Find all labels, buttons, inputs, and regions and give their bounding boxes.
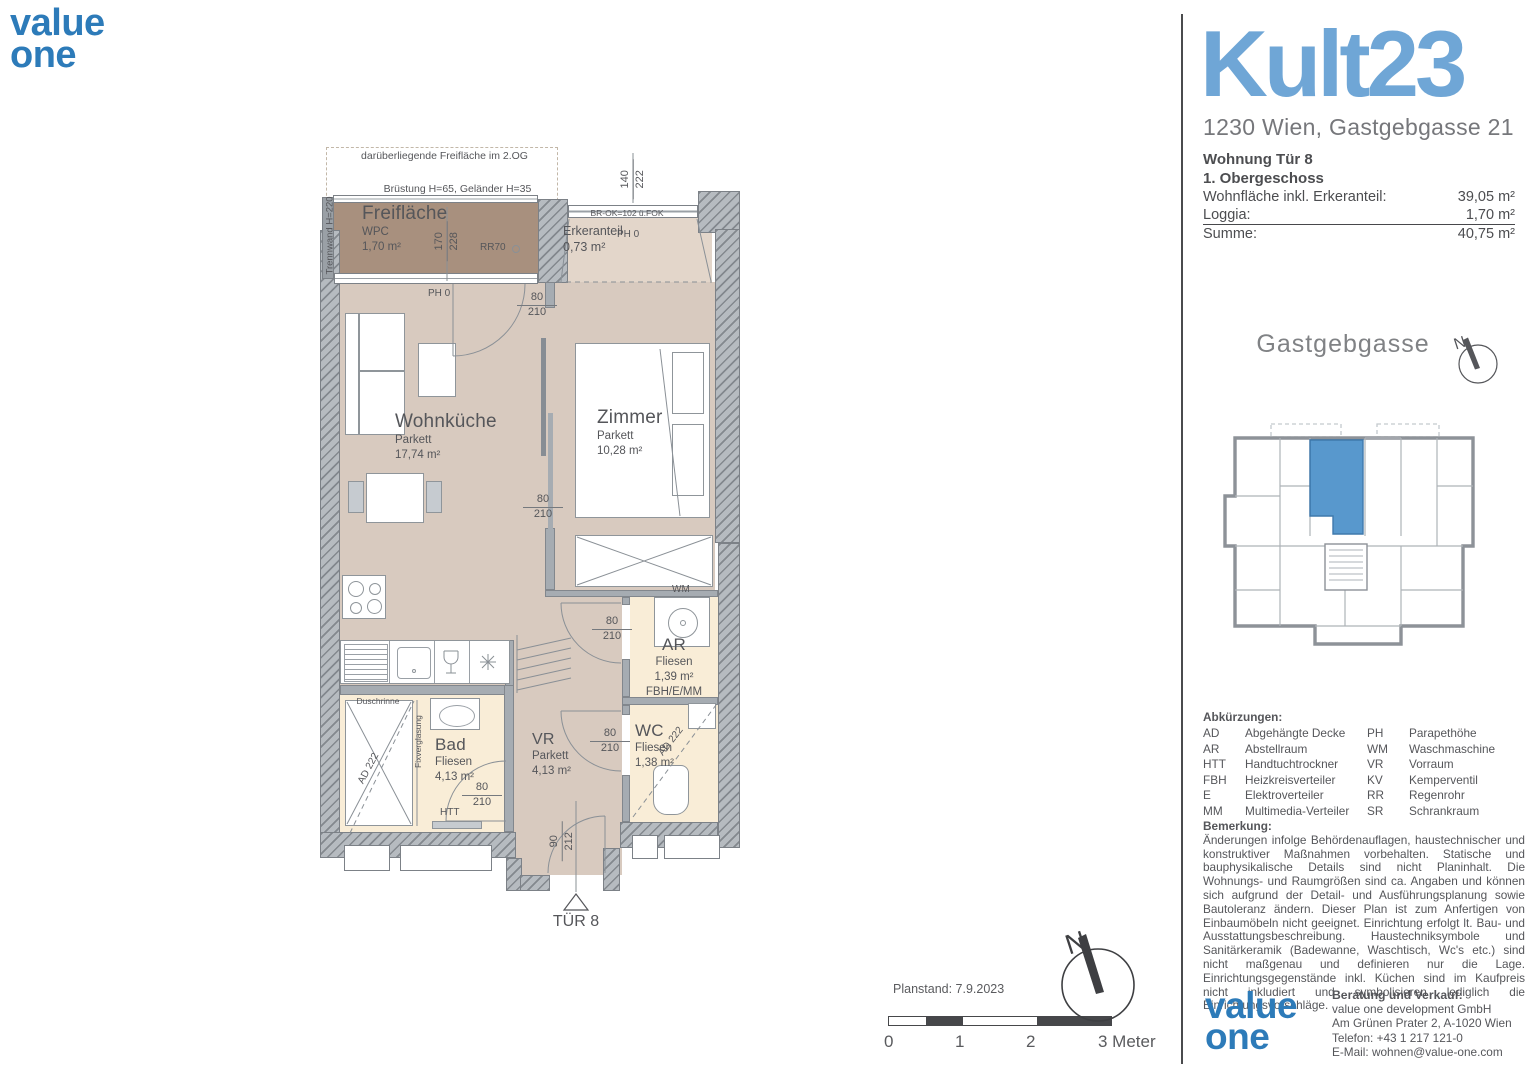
room-label-wohnkueche: Wohnküche Parkett 17,74 m² (395, 411, 497, 463)
svg-text:N: N (1452, 334, 1468, 354)
plan-sheet: { "colors": { "accent_blue": "#2d7bb9", … (0, 0, 1527, 1080)
garderobe-icon (517, 635, 571, 693)
scale-label-3: 3 Meter (1098, 1032, 1156, 1052)
note-wm: WM (672, 584, 690, 595)
dim-wc-door: 80 210 (590, 727, 630, 756)
abbr-term: Waschmaschine (1409, 742, 1495, 758)
abbr-key: AR (1203, 742, 1245, 758)
abbr-term: Vorraum (1409, 757, 1495, 773)
shower-x-icon (347, 702, 411, 824)
scale-segment (889, 1017, 926, 1025)
area-row: Wohnfläche inkl. Erkeranteil: 39,05 m² (1203, 188, 1515, 206)
area-value: 1,70 m² (1466, 206, 1515, 224)
scale-label-1: 1 (955, 1032, 964, 1052)
abbr-term: Schrankraum (1409, 804, 1495, 820)
siteplan-stair-core (1325, 544, 1367, 590)
dim-balcony-door: 170 228 (433, 221, 462, 261)
room-label-bad: Bad Fliesen 4,13 m² (435, 735, 474, 785)
siteplan-balcony (1377, 424, 1439, 437)
unit-number: Wohnung Tür 8 (1203, 150, 1515, 169)
note-htt: HTT (440, 807, 459, 818)
scale-label-2: 2 (1026, 1032, 1035, 1052)
note-trennwand: Trennwand H=220 (325, 203, 336, 275)
abbr-key: E (1203, 788, 1245, 804)
ad-dashed-line-bad (350, 701, 414, 833)
abbr-term: Regenrohr (1409, 788, 1495, 804)
dim-erker-window: 140 222 (619, 159, 648, 199)
abbr-term: Parapethöhe (1409, 726, 1495, 742)
note-rr70: RR70 (480, 242, 506, 253)
area-label: Summe: (1203, 225, 1257, 243)
dim-ar-door: 80 210 (592, 615, 632, 644)
wardrobe-x-icon (577, 537, 711, 585)
room-label-zimmer: Zimmer Parkett 10,28 m² (597, 407, 663, 459)
dishwasher-glass-icon (444, 651, 458, 673)
abbreviations-table: ADAbgehängte DeckePHParapethöhe ARAbstel… (1203, 726, 1495, 819)
note-ph-erker: PH 0 (617, 229, 639, 240)
contact-title: Beratung und Verkauf: (1332, 988, 1512, 1002)
abbreviations-title: Abkürzungen: (1203, 710, 1495, 724)
freezer-star-icon (480, 654, 496, 670)
dim-zimmer-door: 80 210 (523, 493, 563, 522)
value-one-logo: value one (10, 8, 105, 72)
contact-block: Beratung und Verkauf: value one developm… (1332, 988, 1512, 1059)
contact-email: E-Mail: wohnen@value-one.com (1332, 1045, 1512, 1059)
note-duschrinne: Duschrinne (346, 696, 410, 706)
dim-balcony-access: 80 210 (517, 291, 557, 320)
abbr-key: SR (1367, 804, 1409, 820)
value-one-logo-footer: value one (1205, 990, 1297, 1052)
note-br-ok: BR-OK=102 ü.FOK (572, 208, 682, 218)
door-arc-balcony (453, 284, 525, 356)
area-value: 40,75 m² (1458, 225, 1515, 243)
room-label-ar: AR Fliesen 1,39 m² FBH/E/MM (636, 635, 712, 700)
abbr-term: Heizkreisverteiler (1245, 773, 1367, 789)
area-label: Loggia: (1203, 206, 1251, 224)
scale-label-0: 0 (884, 1032, 893, 1052)
floor-plan: darüberliegende Freifläche im 2.OG Brüst… (320, 145, 740, 927)
remark-title: Bemerkung: (1203, 820, 1525, 834)
planstand: Planstand: 7.9.2023 (893, 982, 1004, 996)
area-row: Loggia: 1,70 m² (1203, 206, 1515, 225)
abbr-term: Abstellraum (1245, 742, 1367, 758)
siteplan-street: Gastgebgasse (1203, 330, 1483, 359)
dim-entrance-door: 90 212 (548, 821, 577, 861)
area-row: Summe: 40,75 m² (1203, 225, 1515, 243)
abbr-key: MM (1203, 804, 1245, 820)
bed-throw-line (660, 349, 680, 516)
project-address: 1230 Wien, Gastgebgasse 21 (1203, 114, 1514, 141)
room-label-erker: Erkeranteil 0,73 m² (563, 223, 623, 256)
contact-company: value one development GmbH (1332, 1002, 1512, 1016)
abbr-term: Handtuchtrockner (1245, 757, 1367, 773)
column-divider (1181, 14, 1183, 1064)
abbr-key: FBH (1203, 773, 1245, 789)
entrance-triangle-icon (564, 894, 588, 910)
contact-phone: Telefon: +43 1 217 121-0 (1332, 1031, 1512, 1045)
north-compass-icon: N (1048, 922, 1144, 1026)
siteplan-balcony (1271, 424, 1341, 437)
abbr-key: WM (1367, 742, 1409, 758)
abbr-key: PH (1367, 726, 1409, 742)
abbreviations: Abkürzungen: ADAbgehängte DeckePHParapet… (1203, 710, 1495, 819)
svg-text:N: N (1061, 925, 1090, 961)
regenrohr-icon (513, 246, 520, 253)
dim-bad-door: 80 210 (462, 781, 502, 810)
plan-linework (320, 145, 740, 927)
contact-address: Am Grünen Prater 2, A-1020 Wien (1332, 1016, 1512, 1030)
abbr-term: Multimedia-Verteiler (1245, 804, 1367, 820)
area-label: Wohnfläche inkl. Erkeranteil: (1203, 188, 1387, 206)
abbr-term: Abgehängte Decke (1245, 726, 1367, 742)
abbr-key: KV (1367, 773, 1409, 789)
entrance-label: TÜR 8 (546, 913, 606, 931)
abbr-term: Elektroverteiler (1245, 788, 1367, 804)
logo-word-one: one (10, 40, 105, 72)
area-value: 39,05 m² (1458, 188, 1515, 206)
abbr-key: AD (1203, 726, 1245, 742)
siteplan-drawing (1205, 376, 1505, 662)
abbr-key: RR (1367, 788, 1409, 804)
project-title: Kult23 (1200, 24, 1463, 104)
unit-info: Wohnung Tür 8 1. Obergeschoss Wohnfläche… (1203, 150, 1515, 243)
scale-segment (963, 1017, 1037, 1025)
abbr-key: HTT (1203, 757, 1245, 773)
unit-floor: 1. Obergeschoss (1203, 169, 1515, 188)
note-ph-balkon: PH 0 (428, 288, 450, 299)
scale-segment (926, 1017, 963, 1025)
room-label-vr: VR Parkett 4,13 m² (532, 731, 571, 779)
abbr-key: VR (1367, 757, 1409, 773)
abbr-term: Kemperventil (1409, 773, 1495, 789)
note-fixverglasung: Fixverglasung (413, 700, 423, 768)
